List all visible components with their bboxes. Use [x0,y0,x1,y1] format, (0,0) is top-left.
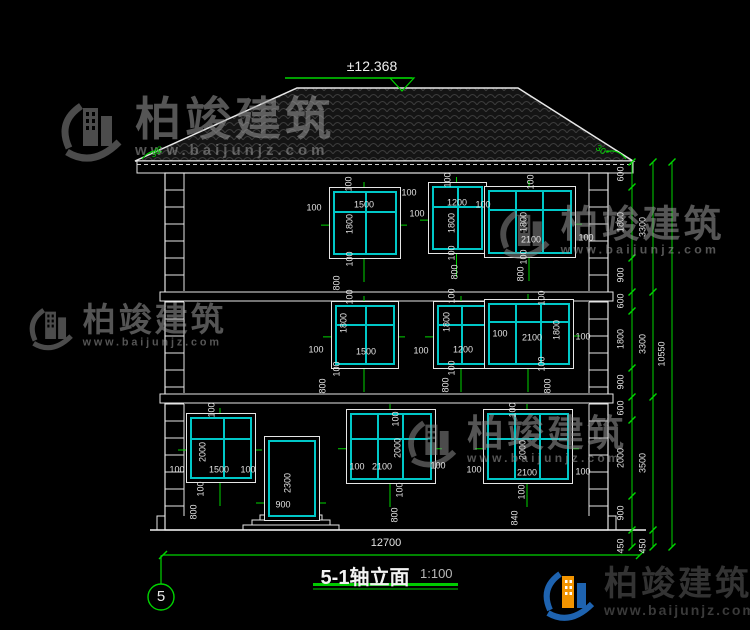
dimension-label: 100 [430,462,445,471]
dimension-label: 1800 [340,313,349,333]
dimension-label: 100 [333,361,342,376]
dimension-label: 1800 [520,212,529,232]
window-mullion [515,192,517,252]
dimension-label: 2000 [617,448,626,468]
dimension-label: 100 [413,347,428,356]
dimension-label: 2300 [284,473,293,493]
overall-width-dim: 12700 [356,537,416,549]
dimension-label: 800 [391,507,400,522]
window-3f-1200 [428,182,487,254]
dimension-label: 1800 [617,329,626,349]
axis-leader [161,555,163,584]
window-2f-1500 [331,301,399,369]
dimension-label: 100 [346,251,355,266]
dimension-label: 100 [448,245,457,260]
overall-dim-line [159,551,644,559]
dimension-label: 1800 [553,320,562,340]
dimension-label: 100 [509,402,518,417]
dimension-label: 2000 [519,440,528,460]
dimension-label: 100 [578,234,593,243]
dimension-label: 3300 [639,217,648,237]
window-transom [192,438,250,440]
dimension-label: 800 [517,266,526,281]
dimension-label: 100 [197,481,206,496]
window-3f-2100 [484,186,576,258]
dimension-label: 800 [319,378,328,393]
dimension-label: 1200 [447,199,467,208]
dimension-label: 100 [575,333,590,342]
dimension-label: 100 [169,466,184,475]
dimension-label: 100 [538,290,547,305]
dimension-label: 100 [409,210,424,219]
dimension-label: 100 [308,346,323,355]
dimension-label: 100 [444,172,453,187]
dimension-label: 100 [306,204,321,213]
dimension-label: 100 [396,482,405,497]
dimension-label: 1800 [448,213,457,233]
window-transom [352,438,430,440]
dimension-label: 1500 [356,348,376,357]
elevation-value: ±12.368 [340,58,404,74]
dimension-label: 800 [451,264,460,279]
dimension-label: 100 [518,484,527,499]
window-mullion [514,415,516,478]
dimension-label: 1500 [209,466,229,475]
dimension-label: 100 [401,189,416,198]
roof [135,88,633,161]
dimension-label: 100 [448,360,457,375]
dimension-label: 900 [617,505,626,520]
dimension-label: 800 [544,378,553,393]
dimension-label: 100 [448,288,457,303]
brand-url: www.baijunjz.com [604,602,750,618]
dimension-label: 100 [492,330,507,339]
window-mullion [539,415,541,478]
window-mullion [461,307,463,363]
dimension-label: 2100 [521,236,541,245]
window-glass [432,186,483,250]
window-transom [335,211,395,213]
window-3f-1500 [329,187,401,259]
dimension-label: 100 [538,356,547,371]
dimension-label: 100 [520,249,529,264]
dimension-label: 2000 [199,442,208,462]
dimension-label: 100 [475,201,490,210]
eave-band [137,161,633,173]
dimension-label: 600 [617,293,626,308]
dimension-label: 450 [617,538,626,553]
dimension-label: 600 [617,400,626,415]
drawing-scale: 1:100 [420,566,453,581]
dimension-label: 800 [190,504,199,519]
dimension-label: 100 [349,463,364,472]
dimension-label: 800 [333,275,342,290]
dimension-label: 800 [442,377,451,392]
dimension-label: 1500 [354,201,374,210]
dimension-label: 1800 [617,212,626,232]
window-transom [490,209,570,211]
elevation-drawing: ±12.368 5-1轴立面 1:100 5 12700 柏竣建筑 www.ba… [0,0,750,630]
plinth-left [157,516,165,530]
window-mullion [402,415,404,478]
dimension-label: 100 [466,466,481,475]
dimension-label: 3500 [639,453,648,473]
dimension-label: 100 [345,176,354,191]
floor-band-2f [160,394,613,403]
dimension-label: 2100 [517,469,537,478]
window-transom [489,438,567,440]
dimension-label: 2100 [372,463,392,472]
dimension-label: 450 [639,538,648,553]
dimension-label: 1800 [346,214,355,234]
window-mullion [542,192,544,252]
brand-logo: 柏竣建筑 www.baijunjz.com [540,566,750,622]
dimension-label: 100 [208,402,217,417]
axis-number: 5 [148,588,174,605]
dimension-label: 10550 [658,341,667,366]
dimension-label: 900 [617,267,626,282]
dimension-label: 900 [275,501,290,510]
dimension-label: 840 [511,510,520,525]
dimension-label: 100 [392,411,401,426]
brand-logo-icon [540,566,598,622]
brand-name: 柏竣建筑 [604,566,750,602]
dimension-label: 1800 [443,312,452,332]
dimension-label: 900 [617,374,626,389]
dimension-label: 2000 [394,438,403,458]
dimension-label: 2100 [522,334,542,343]
dimension-label: 600 [617,166,626,181]
dimension-label: 100 [240,466,255,475]
dimension-label: 100 [527,174,536,189]
dimension-label: 100 [346,289,355,304]
window-mullion [515,305,517,363]
dimension-label: 100 [575,468,590,477]
page-title: 5-1轴立面 [310,561,420,590]
dimension-label: 1200 [453,346,473,355]
dimension-label: 3300 [639,334,648,354]
